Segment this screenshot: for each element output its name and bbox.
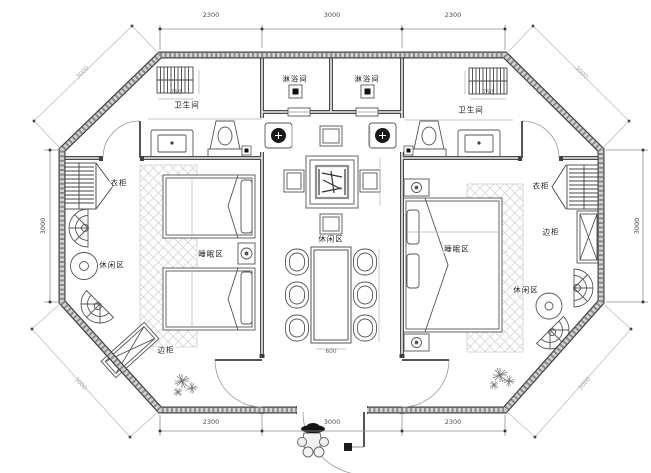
shower-tray-right [458,130,500,157]
bath-door-right [522,121,559,158]
dining-chairs-right [354,249,377,341]
floorplan-canvas: 淋浴间 淋浴间 卫生间 卫生间 衣柜 衣柜 睡眠区 睡眠区 休闲区 休闲区 休闲… [0,0,651,473]
tea-table [306,156,358,208]
plant-left-icon [172,374,199,398]
shower-door-left [288,108,310,116]
wardrobe-left [62,163,113,209]
dim-bottom-mid-value: 3000 [323,419,342,426]
dim-top-left-value: 2300 [202,12,221,19]
label-wardrobe-left: 衣柜 [110,179,129,187]
label-bath-right: 卫生间 [457,106,485,114]
dining-table [311,247,351,343]
side-table-left [71,253,98,280]
toilet-left [208,121,242,157]
label-wardrobe-right: 衣柜 [532,182,551,190]
label-sleep-left: 睡眠区 [197,250,225,258]
bath-door-left [103,121,140,158]
plant-right-icon [488,368,516,391]
fan-chair-left-1 [69,209,89,247]
nightstand-left [238,243,255,264]
nightstand-right-top [404,179,429,196]
toilet-right [412,121,446,157]
bed-double [403,198,502,332]
side-table-right [536,293,562,319]
label-shower-left: 淋浴间 [281,75,309,83]
floor-drain-right-icon [404,146,413,155]
floor-drain-left-icon [242,146,251,155]
bed-single-top [163,175,255,238]
label-sleep-right: 睡眠区 [443,245,471,253]
dim-bottom-right-value: 2300 [444,419,463,426]
shower-drain-right-icon [361,85,374,98]
dining-chairs-left [286,249,309,341]
bed-single-bottom [163,268,255,330]
dim-top [159,25,507,50]
label-bath-left: 卫生间 [173,101,201,109]
shower-tray-left [151,130,193,157]
shower-drain-left-icon [289,85,302,98]
dim-table-width-value: 600 [325,350,336,356]
room-door-right [402,360,449,407]
label-leisure-right: 休闲区 [512,286,540,294]
dim-towel-right-value: 750 [482,91,493,97]
dim-right [606,149,648,304]
washbasin-right-icon [369,123,396,148]
dim-top-right-value: 2300 [444,12,463,19]
label-leisure-left: 休闲区 [98,261,126,269]
fan-chair-right-1 [574,269,594,307]
dim-top-mid-value: 3000 [323,12,342,19]
room-door-left [215,360,262,407]
dim-side-left-value: 3000 [40,217,47,236]
towel-rack-left [157,67,193,93]
washbasin-left-icon [265,123,292,148]
side-cabinet-right [577,211,600,263]
label-leisure-center: 休闲区 [317,235,345,243]
dim-towel-left-value: 750 [170,91,181,97]
label-cabinet-left: 边柜 [157,346,176,354]
dim-bottom-left-value: 2300 [202,419,221,426]
person-figure-icon [298,423,329,457]
nightstand-right-bottom [404,334,429,351]
dim-side-right-value: 3000 [634,217,641,236]
label-cabinet-right: 边柜 [542,228,561,236]
wardrobe-right [552,165,601,209]
label-shower-right: 淋浴间 [353,75,381,83]
shower-door-right [356,108,378,116]
